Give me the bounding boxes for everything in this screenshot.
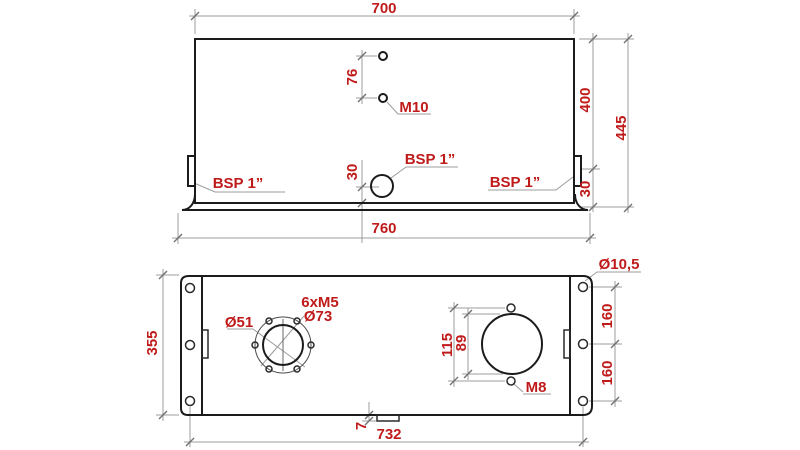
dim-hole-spacing-label: 76: [344, 69, 361, 86]
dim-mount-spacing-lower-label: 160: [599, 360, 616, 385]
mount-hole: [579, 340, 588, 349]
dim-opening-label: 89: [453, 335, 470, 352]
mount-hole-dia-label: Ø10,5: [599, 256, 640, 273]
tank-drawing: 700 76 M10 400 445 BSP 1” BSP 1” BSP 1” …: [0, 0, 800, 450]
bsp-center-label: BSP 1”: [405, 151, 456, 168]
flange-bore-label: Ø51: [225, 314, 253, 331]
dim-drain-offset-label: 7: [353, 422, 370, 430]
mount-hole-leader-line: [585, 272, 641, 281]
m10-label: M10: [399, 99, 428, 116]
filler-opening-circle: [482, 314, 542, 374]
m10-hole-upper: [379, 52, 387, 60]
mount-hole: [579, 283, 588, 292]
front-view-labels: 700 76 M10 400 445 BSP 1” BSP 1” BSP 1” …: [213, 0, 630, 237]
bsp-port-center: [371, 175, 393, 197]
dim-depth-label: 355: [144, 330, 161, 355]
technical-drawing-page: 700 76 M10 400 445 BSP 1” BSP 1” BSP 1” …: [0, 0, 800, 450]
m8-hole-lower: [507, 377, 515, 385]
bolt-circle-label: Ø73: [304, 308, 332, 325]
front-view-dimension-lines: [172, 9, 634, 244]
mount-hole: [186, 397, 195, 406]
mount-hole: [186, 284, 195, 293]
dim-port-center-height-label: 30: [344, 164, 361, 181]
m10-hole-lower: [379, 94, 387, 102]
dim-port-right-height-label: 30: [577, 181, 594, 198]
dim-total-height-label: 445: [613, 115, 630, 140]
dim-mount-span-label: 732: [376, 426, 401, 443]
bsp-port-left: [188, 156, 195, 186]
m8-label: M8: [526, 379, 547, 396]
bsp-center-leader-line: [391, 167, 458, 178]
plan-view-dimension-ticks: [159, 271, 619, 446]
dim-body-height-label: 400: [577, 87, 594, 112]
m8-leader-line: [514, 384, 523, 392]
bsp-left-label: BSP 1”: [213, 175, 264, 192]
dim-base-width-label: 760: [371, 220, 396, 237]
front-view-dimension-ticks: [174, 12, 632, 242]
dim-top-width-label: 700: [371, 0, 396, 17]
m8-hole-upper: [507, 304, 515, 312]
bsp-right-label: BSP 1”: [490, 174, 541, 191]
dim-mount-spacing-upper-label: 160: [599, 303, 616, 328]
mount-hole: [186, 341, 195, 350]
mount-hole: [579, 397, 588, 406]
plan-view: [181, 276, 592, 421]
